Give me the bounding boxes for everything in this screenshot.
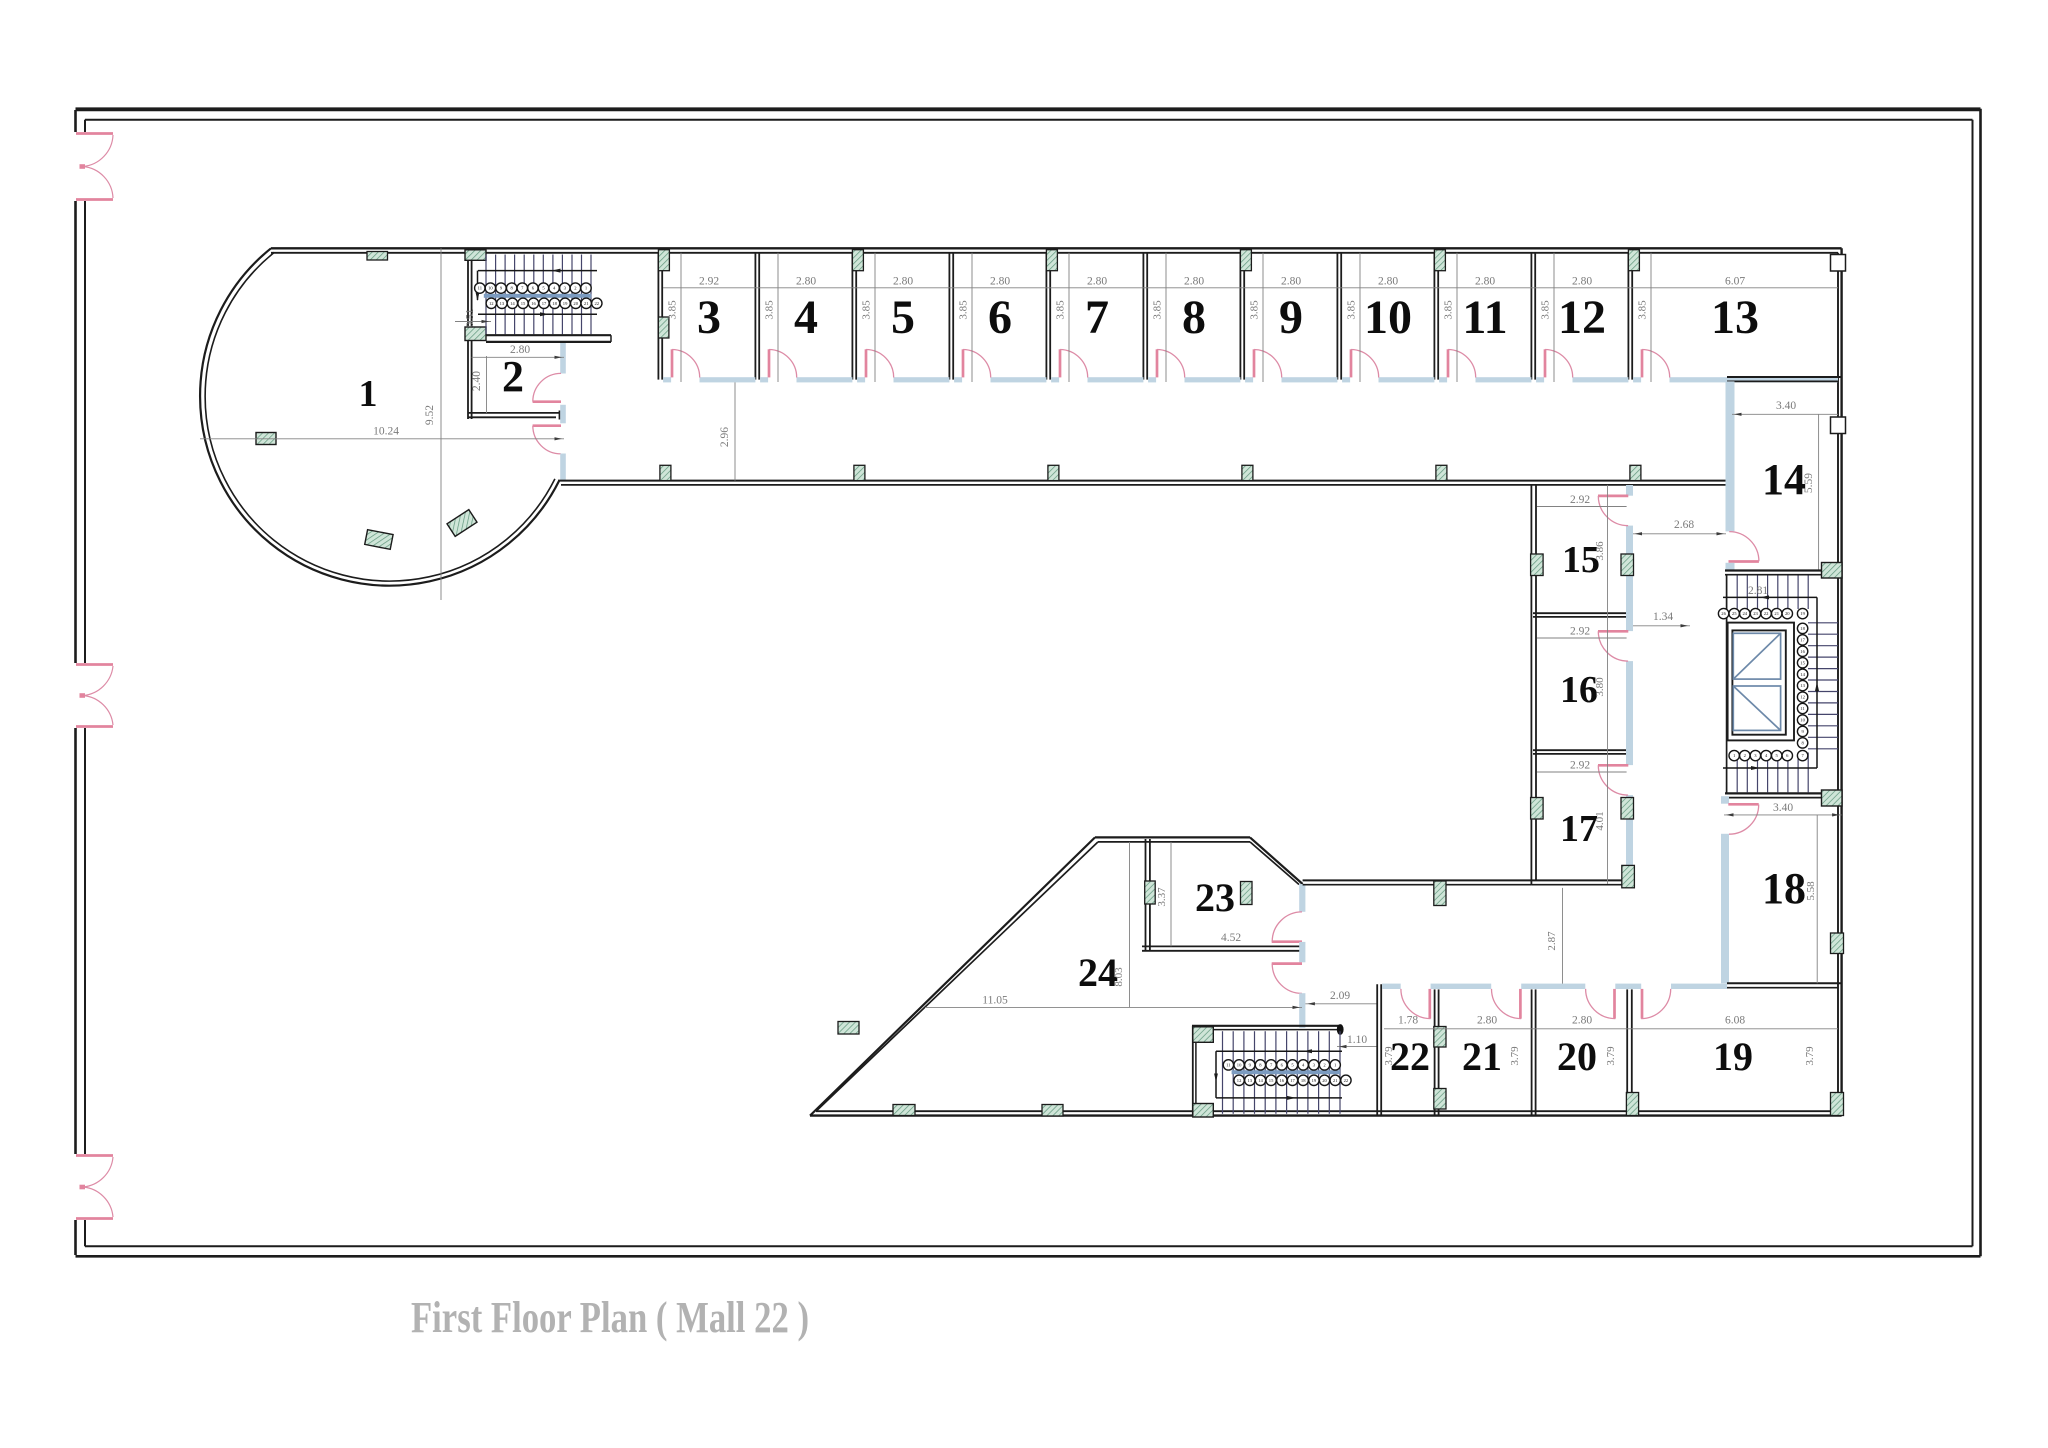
svg-text:3.79: 3.79 — [1605, 1046, 1617, 1066]
svg-text:16: 16 — [1280, 1078, 1285, 1083]
svg-text:17: 17 — [1560, 808, 1598, 850]
svg-text:2.81: 2.81 — [1748, 585, 1768, 597]
svg-text:3.85: 3.85 — [1346, 300, 1358, 320]
svg-text:5.59: 5.59 — [1803, 473, 1815, 493]
svg-text:4.52: 4.52 — [1221, 932, 1241, 944]
svg-text:16: 16 — [531, 301, 536, 306]
svg-text:22: 22 — [595, 301, 600, 306]
svg-text:3.85: 3.85 — [667, 300, 679, 320]
svg-text:First Floor Plan ( Mall 22 ): First Floor Plan ( Mall 22 ) — [411, 1293, 809, 1342]
svg-text:9: 9 — [1279, 291, 1303, 344]
svg-text:23: 23 — [1753, 611, 1758, 616]
svg-text:13: 13 — [1800, 683, 1805, 688]
svg-text:2.68: 2.68 — [1674, 519, 1694, 531]
svg-text:2.96: 2.96 — [719, 427, 731, 447]
svg-text:13: 13 — [1248, 1078, 1253, 1083]
svg-text:2.80: 2.80 — [1281, 276, 1301, 288]
svg-text:1.10: 1.10 — [1347, 1034, 1367, 1046]
svg-text:1.78: 1.78 — [1398, 1015, 1418, 1027]
svg-text:9.52: 9.52 — [424, 405, 436, 425]
svg-text:22: 22 — [1390, 1034, 1430, 1079]
svg-text:8.03: 8.03 — [1113, 967, 1125, 987]
svg-text:2.80: 2.80 — [796, 276, 816, 288]
svg-text:12: 12 — [489, 301, 494, 306]
svg-text:23: 23 — [1195, 875, 1235, 920]
svg-text:20: 20 — [573, 301, 578, 306]
svg-text:14: 14 — [1258, 1078, 1263, 1083]
svg-text:3.85: 3.85 — [1443, 300, 1455, 320]
svg-text:3.85: 3.85 — [1152, 300, 1164, 320]
svg-text:22: 22 — [1344, 1078, 1349, 1083]
svg-text:21: 21 — [1462, 1034, 1502, 1079]
svg-text:2.80: 2.80 — [1087, 276, 1107, 288]
svg-text:3.85: 3.85 — [1540, 300, 1552, 320]
svg-text:11: 11 — [1800, 706, 1805, 711]
svg-text:10: 10 — [488, 286, 493, 291]
svg-text:2.80: 2.80 — [893, 276, 913, 288]
svg-text:3.85: 3.85 — [1249, 300, 1261, 320]
svg-text:13: 13 — [500, 301, 505, 306]
svg-text:3.86: 3.86 — [1594, 541, 1606, 561]
svg-text:10: 10 — [1364, 291, 1412, 344]
svg-text:15: 15 — [521, 301, 526, 306]
svg-text:2.92: 2.92 — [699, 276, 719, 288]
svg-text:2.80: 2.80 — [510, 344, 530, 356]
svg-text:6.07: 6.07 — [1725, 276, 1745, 288]
svg-text:3.40: 3.40 — [1776, 400, 1796, 412]
svg-text:21: 21 — [584, 301, 589, 306]
svg-text:21: 21 — [1774, 611, 1779, 616]
svg-text:19: 19 — [1312, 1078, 1317, 1083]
svg-text:13: 13 — [1711, 291, 1759, 344]
svg-text:3: 3 — [697, 291, 721, 344]
svg-text:3.80: 3.80 — [1594, 677, 1606, 697]
svg-text:20: 20 — [1785, 611, 1790, 616]
svg-text:12: 12 — [1800, 695, 1805, 700]
svg-text:3.79: 3.79 — [1509, 1046, 1521, 1066]
svg-text:14: 14 — [510, 301, 515, 306]
svg-text:0.51: 0.51 — [465, 309, 476, 327]
svg-text:2.80: 2.80 — [1378, 276, 1398, 288]
svg-text:4.01: 4.01 — [1594, 811, 1606, 830]
svg-text:5: 5 — [891, 291, 915, 344]
svg-text:17: 17 — [1800, 638, 1805, 643]
svg-text:2.92: 2.92 — [1570, 626, 1590, 638]
svg-text:19: 19 — [1713, 1034, 1753, 1079]
svg-text:15: 15 — [1800, 660, 1805, 665]
svg-text:2.09: 2.09 — [1330, 990, 1350, 1002]
svg-text:6.08: 6.08 — [1725, 1015, 1745, 1027]
svg-text:12: 12 — [1558, 291, 1606, 344]
svg-text:10: 10 — [1800, 718, 1805, 723]
svg-text:5.58: 5.58 — [1805, 881, 1817, 901]
svg-text:2.92: 2.92 — [1570, 760, 1590, 772]
svg-text:3.85: 3.85 — [1637, 300, 1649, 320]
svg-text:20: 20 — [1557, 1034, 1597, 1079]
svg-text:3.40: 3.40 — [1773, 802, 1793, 814]
svg-text:24: 24 — [1078, 950, 1118, 995]
svg-text:3.85: 3.85 — [861, 300, 873, 320]
svg-text:3.85: 3.85 — [1055, 300, 1067, 320]
svg-text:18: 18 — [1301, 1078, 1306, 1083]
svg-text:4: 4 — [794, 291, 818, 344]
svg-text:2.87: 2.87 — [1546, 931, 1558, 951]
svg-text:11: 11 — [1226, 1063, 1231, 1068]
svg-text:10: 10 — [1237, 1063, 1242, 1068]
svg-text:16: 16 — [1560, 669, 1598, 711]
svg-text:21: 21 — [1333, 1078, 1338, 1083]
svg-text:1.34: 1.34 — [1653, 611, 1673, 623]
svg-text:18: 18 — [552, 301, 557, 306]
svg-text:26: 26 — [1721, 611, 1726, 616]
svg-text:11: 11 — [478, 286, 483, 291]
svg-text:19: 19 — [563, 301, 568, 306]
svg-text:24: 24 — [1743, 611, 1748, 616]
svg-text:2.80: 2.80 — [990, 276, 1010, 288]
svg-text:2.80: 2.80 — [1475, 276, 1495, 288]
svg-text:3.79: 3.79 — [1804, 1046, 1816, 1066]
svg-text:10.24: 10.24 — [373, 426, 399, 438]
svg-text:11: 11 — [1462, 291, 1507, 344]
svg-text:2.80: 2.80 — [1477, 1015, 1497, 1027]
svg-text:18: 18 — [1800, 626, 1805, 631]
svg-text:17: 17 — [542, 301, 547, 306]
svg-text:2.92: 2.92 — [1570, 494, 1590, 506]
svg-text:16: 16 — [1800, 649, 1805, 654]
svg-text:20: 20 — [1322, 1078, 1327, 1083]
svg-text:12: 12 — [1237, 1078, 1242, 1083]
svg-text:15: 15 — [1269, 1078, 1274, 1083]
svg-text:11.05: 11.05 — [982, 995, 1008, 1007]
svg-text:3.79: 3.79 — [1383, 1046, 1395, 1066]
svg-text:18: 18 — [1762, 864, 1806, 913]
svg-text:3.37: 3.37 — [1156, 887, 1168, 907]
svg-text:14: 14 — [1762, 455, 1806, 504]
svg-text:2: 2 — [502, 352, 524, 401]
svg-text:2.80: 2.80 — [1572, 1015, 1592, 1027]
svg-text:2.80: 2.80 — [1184, 276, 1204, 288]
svg-text:8: 8 — [1182, 291, 1206, 344]
svg-text:22: 22 — [1764, 611, 1769, 616]
svg-text:3.85: 3.85 — [764, 300, 776, 320]
svg-text:3.85: 3.85 — [958, 300, 970, 320]
svg-text:6: 6 — [988, 291, 1012, 344]
svg-text:17: 17 — [1290, 1078, 1295, 1083]
svg-text:25: 25 — [1732, 611, 1737, 616]
svg-text:2.80: 2.80 — [1572, 276, 1592, 288]
svg-text:2.40: 2.40 — [471, 371, 483, 391]
svg-text:1: 1 — [359, 373, 378, 415]
svg-text:7: 7 — [1085, 291, 1109, 344]
svg-text:19: 19 — [1800, 611, 1805, 616]
svg-text:14: 14 — [1800, 672, 1805, 677]
